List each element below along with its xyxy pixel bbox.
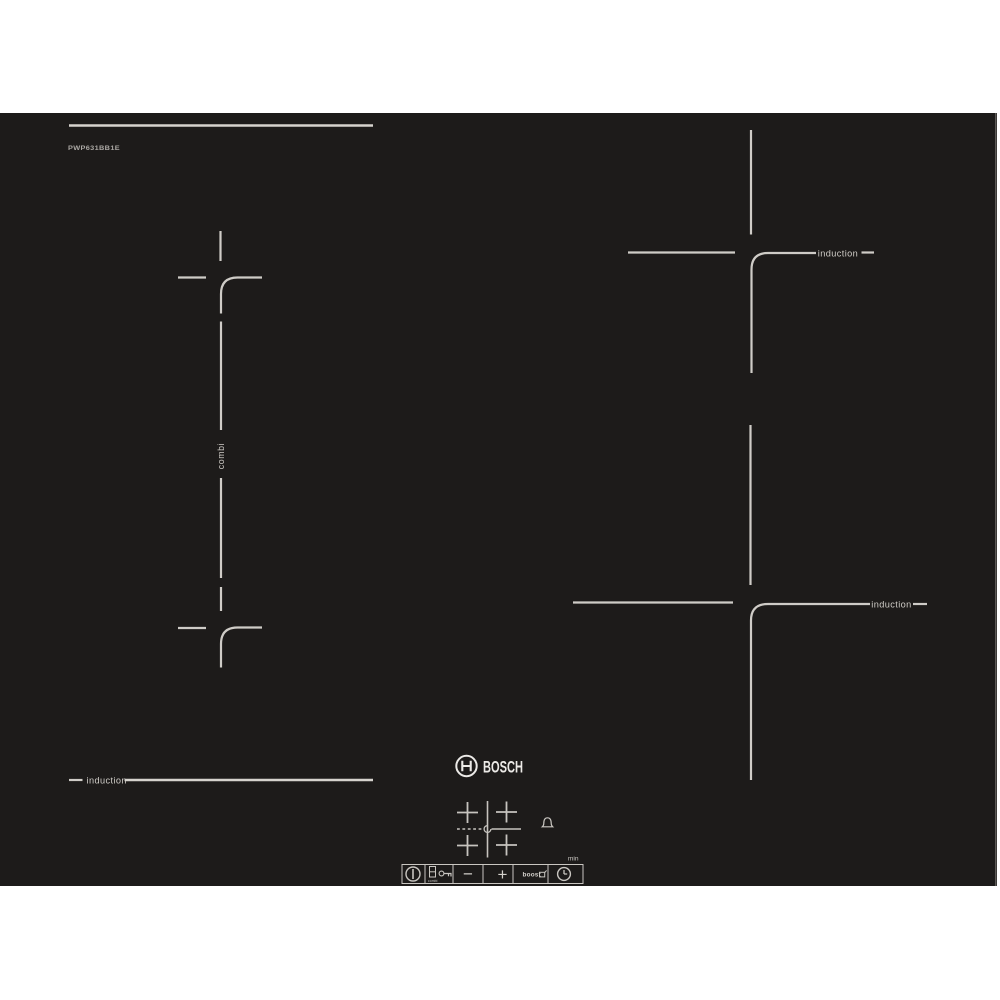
minus-glyph: − (463, 864, 473, 883)
model-number: PWP631BB1E (68, 145, 120, 152)
plus-button[interactable]: + (498, 865, 508, 884)
product-photo: PWP631BB1E combi induction induction ind… (0, 0, 1000, 1000)
combi-select-label: combi (428, 879, 438, 883)
timer-min-label: min (568, 856, 579, 863)
minus-button[interactable]: − (463, 864, 473, 883)
combi-zone-label: combi (216, 443, 226, 469)
boost-label: boost (523, 872, 542, 879)
back-right-zone-label: induction (818, 249, 858, 259)
plus-glyph: + (498, 865, 508, 884)
front-left-zone-label: induction (87, 776, 127, 786)
front-right-zone-label: induction (871, 600, 911, 610)
brand-wordmark: BOSCH (483, 759, 523, 777)
